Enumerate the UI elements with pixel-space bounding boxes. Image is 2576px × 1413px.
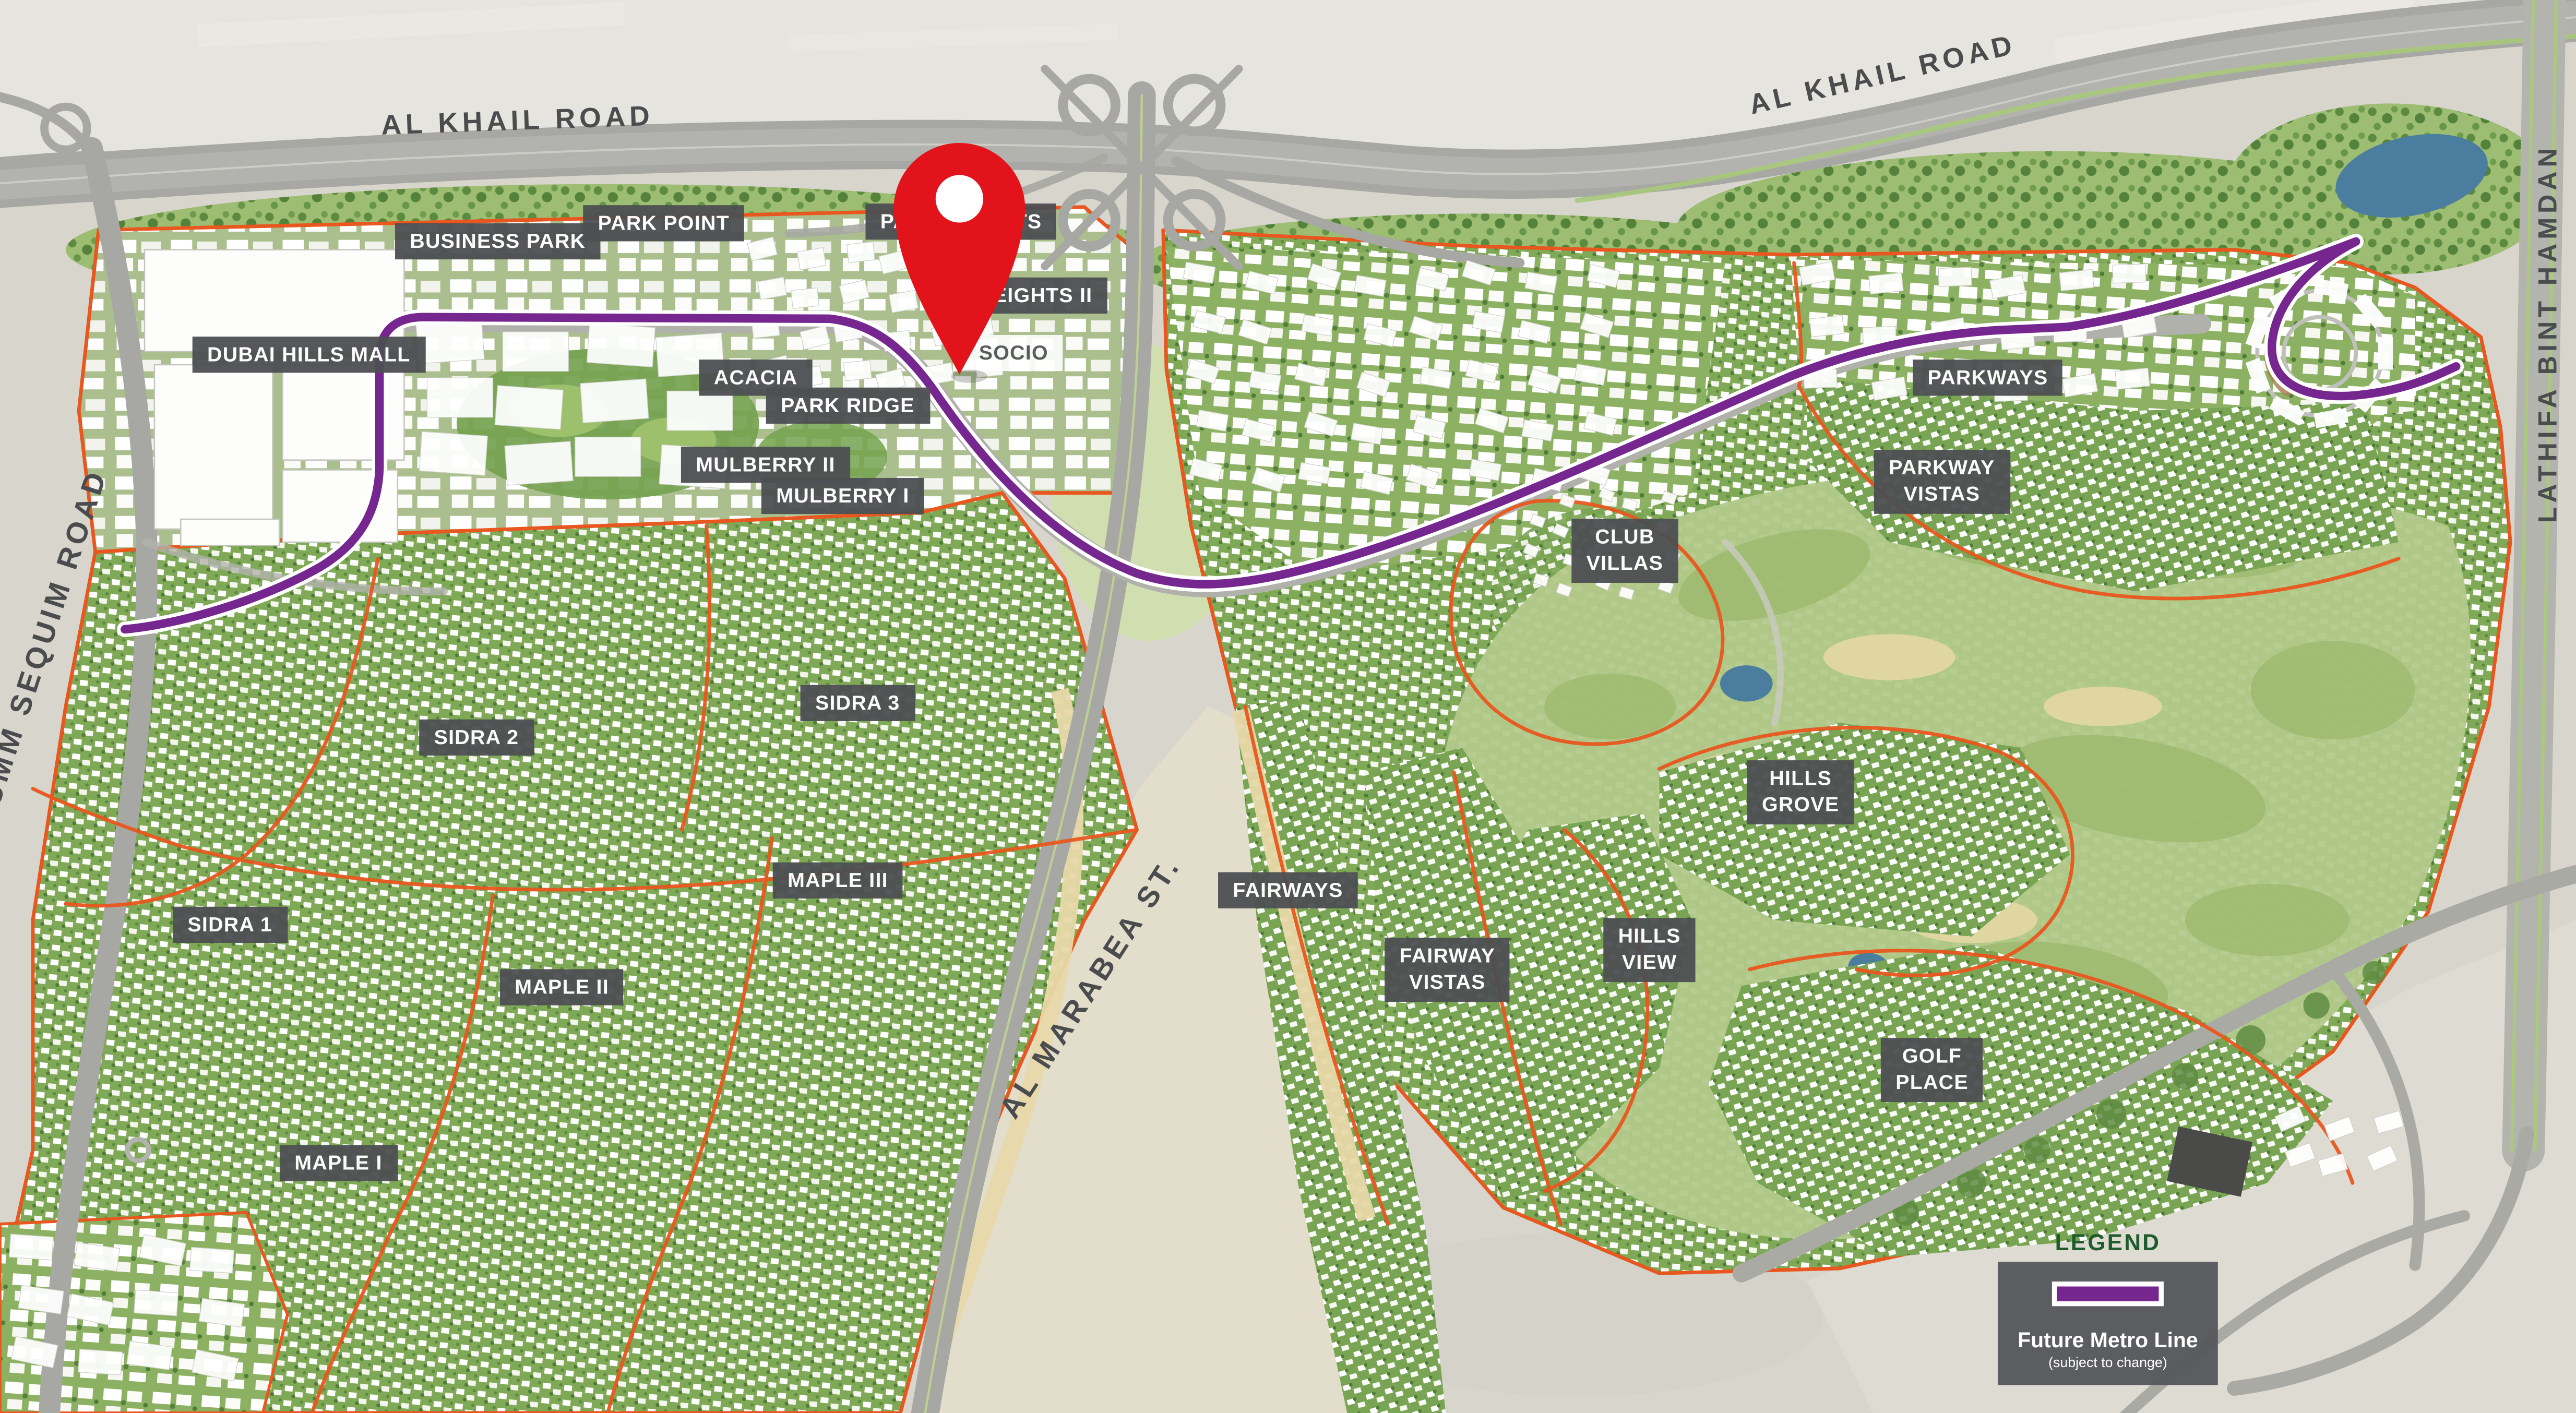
legend: LEGEND Future Metro Line (subject to cha… — [1998, 1229, 2218, 1385]
legend-item-label: Future Metro Line — [2008, 1327, 2208, 1352]
legend-item-note: (subject to change) — [2008, 1354, 2208, 1370]
metro-line-swatch — [2052, 1282, 2164, 1306]
map-stage: AL KHAIL ROADAL KHAIL ROADUMM SEQUIM ROA… — [0, 0, 2576, 1413]
location-pin-icon[interactable] — [894, 143, 1025, 383]
legend-box: Future Metro Line (subject to change) — [1998, 1262, 2218, 1385]
legend-title: LEGEND — [1998, 1229, 2218, 1255]
map-viewport: AL KHAIL ROADAL KHAIL ROADUMM SEQUIM ROA… — [0, 0, 2576, 1413]
